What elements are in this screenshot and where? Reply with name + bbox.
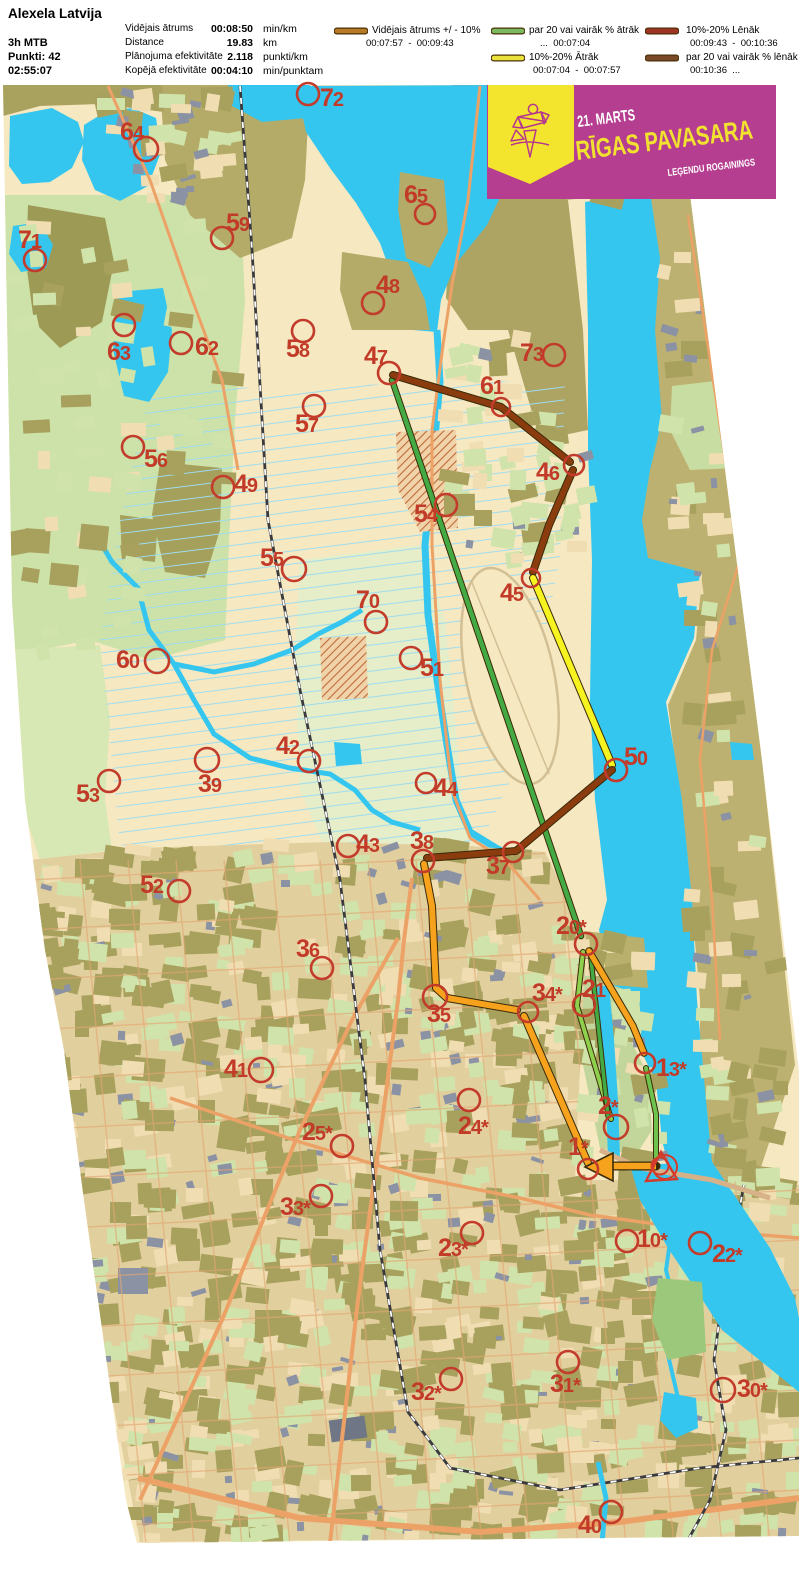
svg-text:59: 59	[226, 209, 250, 237]
svg-text:53: 53	[76, 780, 100, 808]
svg-text:43: 43	[356, 830, 380, 858]
svg-text:54: 54	[414, 500, 439, 528]
svg-text:47: 47	[364, 342, 388, 370]
svg-text:23*: 23*	[438, 1234, 469, 1262]
svg-text:22*: 22*	[712, 1240, 743, 1268]
svg-text:72: 72	[320, 84, 344, 112]
svg-text:73: 73	[520, 339, 544, 367]
svg-text:42: 42	[276, 732, 300, 760]
svg-text:61: 61	[480, 372, 504, 400]
svg-text:21: 21	[582, 975, 606, 1003]
svg-text:48: 48	[376, 271, 400, 299]
svg-text:30*: 30*	[737, 1375, 768, 1403]
svg-text:24*: 24*	[458, 1112, 489, 1140]
svg-text:39: 39	[198, 770, 222, 798]
svg-text:25*: 25*	[302, 1118, 333, 1146]
svg-text:50: 50	[624, 743, 648, 771]
svg-text:33*: 33*	[280, 1193, 311, 1221]
svg-text:2*: 2*	[598, 1092, 619, 1120]
svg-text:55: 55	[260, 544, 284, 572]
svg-text:56: 56	[144, 445, 168, 473]
svg-text:31*: 31*	[550, 1370, 581, 1398]
svg-text:49: 49	[234, 470, 258, 498]
svg-text:57: 57	[295, 410, 319, 438]
svg-text:64: 64	[120, 118, 145, 146]
svg-text:37: 37	[486, 852, 510, 880]
svg-text:70: 70	[356, 586, 380, 614]
svg-text:45: 45	[500, 579, 524, 607]
svg-text:62: 62	[195, 333, 219, 361]
svg-text:38: 38	[410, 827, 434, 855]
svg-text:60: 60	[116, 646, 140, 674]
svg-text:63: 63	[107, 338, 131, 366]
svg-text:58: 58	[286, 335, 310, 363]
svg-text:34*: 34*	[532, 979, 563, 1007]
svg-text:13*: 13*	[656, 1054, 687, 1082]
svg-text:46: 46	[536, 458, 560, 486]
svg-text:10*: 10*	[637, 1225, 668, 1253]
svg-text:71: 71	[18, 226, 42, 254]
svg-text:35: 35	[427, 1000, 451, 1028]
svg-text:65: 65	[404, 181, 428, 209]
svg-text:32*: 32*	[411, 1378, 442, 1406]
svg-text:41: 41	[224, 1055, 248, 1083]
svg-text:44: 44	[434, 774, 459, 802]
svg-text:36: 36	[296, 935, 320, 963]
svg-text:52: 52	[140, 871, 164, 899]
svg-text:20*: 20*	[556, 912, 587, 940]
svg-text:40: 40	[578, 1511, 602, 1539]
svg-text:51: 51	[420, 654, 444, 682]
svg-text:1*: 1*	[568, 1133, 589, 1161]
